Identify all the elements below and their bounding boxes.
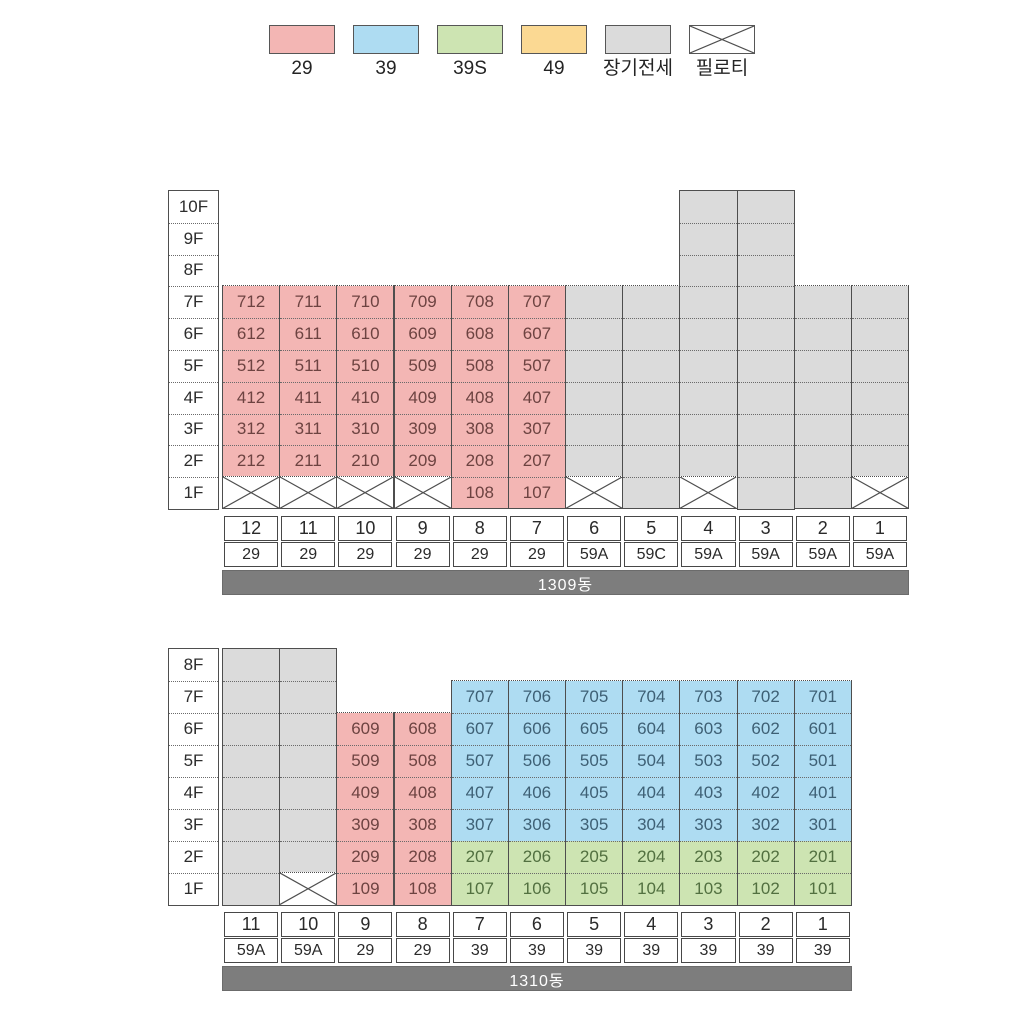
unit-cell: 108 [395, 873, 451, 905]
jeonse-cell [223, 681, 279, 713]
unit-column-segment: 706606506406306206106 [508, 680, 566, 906]
floor-separator [452, 841, 508, 842]
floor-separator [566, 873, 622, 874]
floor-separator [169, 681, 218, 682]
unit-cell: 209 [337, 841, 393, 873]
jeonse-cell [280, 841, 336, 873]
unit-cell: 403 [680, 777, 736, 809]
floor-separator [680, 777, 736, 778]
unit-cell: 305 [566, 809, 622, 841]
floor-separator [738, 713, 794, 714]
unit-cell: 206 [509, 841, 565, 873]
floor-separator [738, 809, 794, 810]
line-number-cell: 1 [796, 912, 850, 937]
floor-separator [509, 809, 565, 810]
floor-separator [280, 841, 336, 842]
unit-cell: 704 [623, 681, 679, 713]
line-number-cell: 9 [338, 912, 392, 937]
unit-cell: 507 [452, 745, 508, 777]
jeonse-cell [223, 649, 279, 681]
unit-cell: 307 [452, 809, 508, 841]
unit-column-segment: 701601501401301201101 [794, 680, 852, 906]
floor-separator [509, 873, 565, 874]
floor-separator [795, 745, 851, 746]
line-number-cell: 4 [624, 912, 678, 937]
building-1310-diagram: 8F7F6F5F4F3F2F1F1159A1059A60950940930920… [0, 0, 1024, 1024]
jeonse-cell [280, 777, 336, 809]
floor-separator [223, 777, 279, 778]
floor-separator [623, 873, 679, 874]
building-title-bar: 1310동 [222, 966, 852, 991]
line-number-cell: 8 [396, 912, 450, 937]
unit-column-segment: 705605505405305205105 [565, 680, 623, 906]
floor-separator [509, 777, 565, 778]
floor-separator [280, 777, 336, 778]
line-number-cell: 2 [739, 912, 793, 937]
unit-column-segment: 703603503403303203103 [679, 680, 737, 906]
unit-cell: 606 [509, 713, 565, 745]
floor-separator [566, 713, 622, 714]
unit-cell: 609 [337, 713, 393, 745]
unit-cell: 104 [623, 873, 679, 905]
unit-cell: 109 [337, 873, 393, 905]
unit-type-cell: 39 [624, 938, 678, 963]
unit-cell: 706 [509, 681, 565, 713]
unit-cell: 306 [509, 809, 565, 841]
floor-separator [452, 713, 508, 714]
floor-separator [623, 745, 679, 746]
unit-cell: 204 [623, 841, 679, 873]
apartment-unit-chart: 29 39 39S 49 장기전세 필로티 10F9F [0, 0, 1024, 1024]
floor-separator [795, 809, 851, 810]
jeonse-cell [280, 713, 336, 745]
unit-column-segment: 704604504404304204104 [622, 680, 680, 906]
floor-separator [223, 841, 279, 842]
floor-separator [280, 809, 336, 810]
jeonse-cell [223, 809, 279, 841]
line-number-cell: 11 [224, 912, 278, 937]
unit-cell: 102 [738, 873, 794, 905]
unit-cell: 603 [680, 713, 736, 745]
floor-separator [452, 873, 508, 874]
floor-separator [395, 777, 451, 778]
unit-cell: 608 [395, 713, 451, 745]
floor-label: 8F [169, 649, 218, 681]
floor-label: 2F [169, 841, 218, 873]
jeonse-cell [223, 713, 279, 745]
unit-cell: 504 [623, 745, 679, 777]
floor-separator [223, 713, 279, 714]
floor-separator [623, 777, 679, 778]
unit-cell: 506 [509, 745, 565, 777]
unit-cell: 602 [738, 713, 794, 745]
unit-column-segment: 702602502402302202102 [737, 680, 795, 906]
unit-cell: 202 [738, 841, 794, 873]
floor-separator [169, 841, 218, 842]
floor-label: 4F [169, 777, 218, 809]
unit-cell: 103 [680, 873, 736, 905]
floor-separator [509, 713, 565, 714]
unit-cell: 501 [795, 745, 851, 777]
line-number-cell: 10 [281, 912, 335, 937]
floor-separator [337, 745, 393, 746]
unit-cell: 301 [795, 809, 851, 841]
floor-separator [280, 745, 336, 746]
unit-type-cell: 39 [567, 938, 621, 963]
jeonse-cell [280, 649, 336, 681]
floor-separator [738, 873, 794, 874]
floor-separator [680, 873, 736, 874]
floor-separator [680, 745, 736, 746]
floor-label: 1F [169, 873, 218, 905]
floor-separator [795, 713, 851, 714]
floor-separator [795, 873, 851, 874]
floor-label: 3F [169, 809, 218, 841]
floor-separator [738, 841, 794, 842]
jeonse-cell [280, 745, 336, 777]
floor-separator [223, 745, 279, 746]
unit-cell: 605 [566, 713, 622, 745]
unit-cell: 505 [566, 745, 622, 777]
unit-cell: 604 [623, 713, 679, 745]
floor-separator [169, 713, 218, 714]
unit-cell: 304 [623, 809, 679, 841]
floor-label: 5F [169, 745, 218, 777]
floor-separator [623, 713, 679, 714]
floor-separator [452, 777, 508, 778]
floor-separator [223, 681, 279, 682]
unit-cell: 701 [795, 681, 851, 713]
unit-cell: 406 [509, 777, 565, 809]
unit-type-cell: 29 [338, 938, 392, 963]
floor-separator [337, 873, 393, 874]
floor-separator [738, 745, 794, 746]
floor-separator [337, 777, 393, 778]
unit-cell: 702 [738, 681, 794, 713]
floor-separator [566, 745, 622, 746]
unit-type-cell: 39 [510, 938, 564, 963]
unit-cell: 401 [795, 777, 851, 809]
unit-type-cell: 39 [681, 938, 735, 963]
unit-type-cell: 39 [739, 938, 793, 963]
floor-label: 6F [169, 713, 218, 745]
unit-cell: 308 [395, 809, 451, 841]
unit-cell: 303 [680, 809, 736, 841]
floor-separator [280, 681, 336, 682]
unit-cell: 302 [738, 809, 794, 841]
unit-cell: 707 [452, 681, 508, 713]
line-number-cell: 6 [510, 912, 564, 937]
floor-separator [169, 809, 218, 810]
floor-separator [680, 841, 736, 842]
floor-separator [452, 745, 508, 746]
unit-cell: 502 [738, 745, 794, 777]
floor-separator [280, 713, 336, 714]
floor-separator [395, 873, 451, 874]
unit-type-cell: 59A [224, 938, 278, 963]
jeonse-cell [280, 681, 336, 713]
unit-cell: 201 [795, 841, 851, 873]
unit-column-segment [222, 648, 280, 906]
floor-separator [337, 809, 393, 810]
floor-separator [169, 777, 218, 778]
unit-cell: 106 [509, 873, 565, 905]
floor-separator [566, 841, 622, 842]
line-number-cell: 3 [681, 912, 735, 937]
unit-cell: 508 [395, 745, 451, 777]
unit-cell: 105 [566, 873, 622, 905]
unit-cell: 607 [452, 713, 508, 745]
floor-separator [169, 873, 218, 874]
line-number-cell: 5 [567, 912, 621, 937]
floor-label-column: 8F7F6F5F4F3F2F1F [168, 648, 219, 906]
jeonse-cell [223, 873, 279, 905]
pilotis-x-icon [280, 873, 336, 905]
building-title-bar: 1309동 [222, 570, 909, 595]
unit-column-segment: 609509409309209109 [336, 712, 394, 906]
pilotis-cell [279, 872, 337, 906]
jeonse-cell [280, 809, 336, 841]
floor-separator [623, 841, 679, 842]
floor-separator [452, 809, 508, 810]
floor-separator [395, 841, 451, 842]
unit-cell: 405 [566, 777, 622, 809]
floor-separator [738, 777, 794, 778]
floor-separator [623, 809, 679, 810]
unit-cell: 107 [452, 873, 508, 905]
line-number-cell: 7 [453, 912, 507, 937]
unit-cell: 705 [566, 681, 622, 713]
jeonse-cell [223, 777, 279, 809]
unit-cell: 407 [452, 777, 508, 809]
unit-cell: 309 [337, 809, 393, 841]
unit-type-cell: 39 [453, 938, 507, 963]
unit-type-cell: 29 [396, 938, 450, 963]
floor-separator [680, 809, 736, 810]
floor-separator [795, 777, 851, 778]
floor-separator [337, 841, 393, 842]
floor-separator [223, 809, 279, 810]
unit-cell: 208 [395, 841, 451, 873]
jeonse-cell [223, 841, 279, 873]
unit-cell: 509 [337, 745, 393, 777]
unit-cell: 101 [795, 873, 851, 905]
floor-label: 7F [169, 681, 218, 713]
unit-column-segment: 707607507407307207107 [451, 680, 509, 906]
jeonse-cell [223, 745, 279, 777]
unit-cell: 503 [680, 745, 736, 777]
unit-cell: 402 [738, 777, 794, 809]
unit-cell: 203 [680, 841, 736, 873]
floor-separator [566, 777, 622, 778]
unit-type-cell: 59A [281, 938, 335, 963]
unit-type-cell: 39 [796, 938, 850, 963]
floor-separator [509, 745, 565, 746]
floor-separator [795, 841, 851, 842]
floor-separator [680, 713, 736, 714]
floor-separator [395, 745, 451, 746]
unit-column-segment [279, 648, 337, 874]
unit-cell: 404 [623, 777, 679, 809]
floor-separator [223, 873, 279, 874]
unit-cell: 205 [566, 841, 622, 873]
floor-separator [566, 809, 622, 810]
unit-cell: 409 [337, 777, 393, 809]
unit-cell: 207 [452, 841, 508, 873]
floor-separator [395, 809, 451, 810]
floor-separator [169, 745, 218, 746]
unit-cell: 601 [795, 713, 851, 745]
floor-separator [509, 841, 565, 842]
unit-column-segment: 608508408308208108 [394, 712, 452, 906]
unit-cell: 703 [680, 681, 736, 713]
unit-cell: 408 [395, 777, 451, 809]
